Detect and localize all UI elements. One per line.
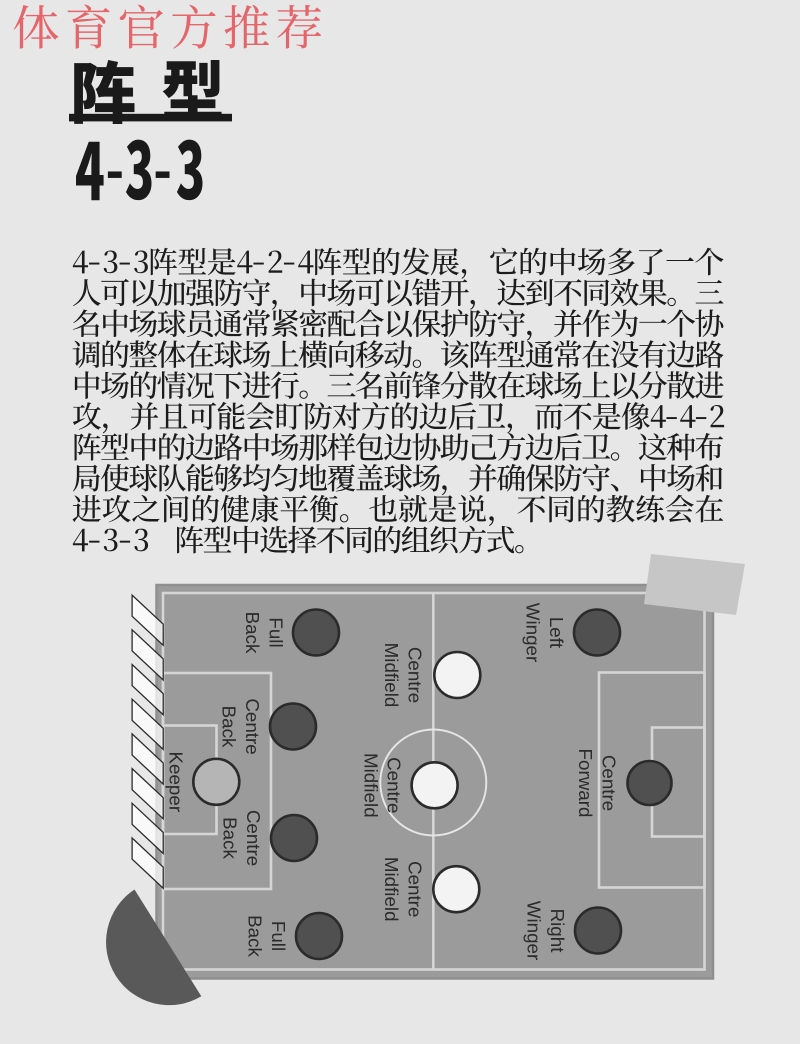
svg-text:Forward: Forward [575, 749, 596, 818]
svg-text:Back: Back [245, 915, 266, 957]
svg-text:Back: Back [220, 817, 241, 859]
svg-text:Centre: Centre [599, 755, 620, 811]
svg-text:Midfield: Midfield [381, 643, 402, 708]
svg-text:Centre: Centre [243, 810, 264, 866]
svg-text:Winger: Winger [524, 901, 545, 961]
svg-text:Centre: Centre [242, 698, 263, 754]
svg-text:Keeper: Keeper [165, 752, 186, 813]
svg-text:Full: Full [266, 617, 287, 647]
svg-text:Left: Left [546, 617, 567, 649]
svg-text:Midfield: Midfield [381, 857, 402, 922]
svg-text:Centre: Centre [384, 757, 405, 813]
svg-text:Right: Right [547, 909, 568, 954]
svg-text:Winger: Winger [523, 603, 544, 663]
svg-text:Centre: Centre [405, 647, 426, 703]
svg-text:Back: Back [219, 706, 240, 748]
svg-text:Full: Full [268, 921, 289, 951]
svg-text:Midfield: Midfield [360, 753, 381, 818]
svg-text:Centre: Centre [405, 861, 426, 917]
svg-text:Back: Back [242, 612, 263, 654]
